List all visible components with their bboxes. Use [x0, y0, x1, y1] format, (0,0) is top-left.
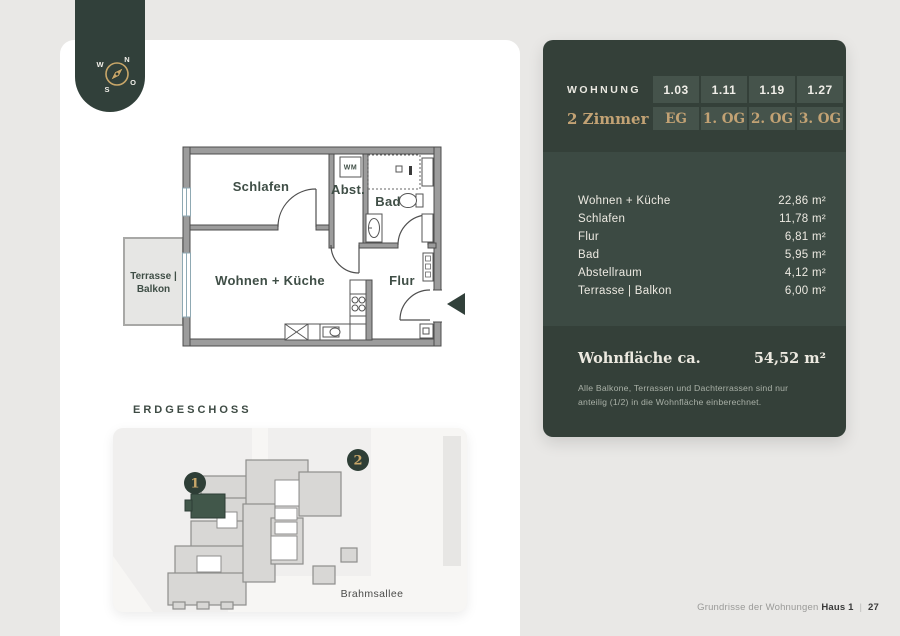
- brochure-page: N O S W Terrasse | Balkon: [0, 0, 900, 636]
- wall-bad-bottom: [359, 243, 398, 248]
- door-schlafen: [278, 189, 316, 227]
- unit-cell-1-03[interactable]: 1.03: [653, 76, 699, 103]
- footer-page-number: 27: [868, 602, 879, 613]
- room-label-terrasse-1: Terrasse |: [130, 271, 177, 282]
- floor-level-label: ERDGESCHOSS: [133, 404, 252, 416]
- room-row: Bad 5,95 m²: [578, 246, 826, 264]
- wall-stub2: [428, 243, 436, 248]
- kitchen-counter: [285, 324, 366, 340]
- unit-cell-1-19[interactable]: 1.19: [749, 76, 795, 103]
- site-plan-map: 1 2 Brahmsallee: [113, 428, 467, 612]
- wall-kitchen: [366, 280, 372, 340]
- footer-house: Haus 1: [821, 602, 853, 613]
- floor-plan: Terrasse | Balkon: [120, 138, 470, 358]
- shower-area: [368, 155, 420, 189]
- window-terrace-door: [183, 253, 191, 317]
- floor-cell-3og[interactable]: 3. OG: [797, 107, 843, 130]
- wall-abst-left: [329, 154, 334, 248]
- window-schlafen: [183, 188, 191, 216]
- unit-cell-1-27[interactable]: 1.27: [797, 76, 843, 103]
- room-label-bad: Bad: [375, 194, 400, 209]
- stove: [350, 280, 366, 324]
- door-abstellraum: [331, 245, 359, 273]
- wall-niche-1: [422, 158, 433, 186]
- compass-icon: N O S W: [75, 0, 145, 112]
- footer-separator: |: [857, 602, 866, 613]
- site-plan-card: 1 2 Brahmsallee: [113, 428, 467, 612]
- room-row: Flur 6,81 m²: [578, 228, 826, 246]
- room-row-area: 5,95 m²: [785, 246, 826, 264]
- floor-cell-1og[interactable]: 1. OG: [701, 107, 747, 130]
- panel-header: WOHNUNG 1.03 1.11 1.19 1.27 2 Zimmer EG …: [543, 40, 846, 152]
- building-1: [168, 476, 253, 609]
- room-row-area: 6,00 m²: [785, 282, 826, 300]
- room-label-schlafen: Schlafen: [233, 179, 290, 194]
- road-right: [443, 436, 461, 566]
- room-row-label: Terrasse | Balkon: [578, 282, 672, 300]
- room-row: Schlafen 11,78 m²: [578, 210, 826, 228]
- wm-label: WM: [344, 165, 357, 172]
- wall-niche-2: [422, 214, 433, 242]
- entry-opening: [433, 290, 442, 322]
- house-2-badge: 2: [347, 449, 369, 471]
- street-label: Brahmsallee: [341, 588, 404, 600]
- building-2: [243, 460, 357, 584]
- house-1-badge: 1: [184, 472, 206, 494]
- room-label-flur: Flur: [389, 273, 415, 288]
- total-area-section: Wohnfläche ca. 54,52 m² Alle Balkone, Te…: [543, 326, 846, 437]
- floor-cell-eg[interactable]: EG: [653, 107, 699, 130]
- zimmer-label: 2 Zimmer: [567, 110, 651, 128]
- total-area-label: Wohnfläche ca.: [578, 350, 701, 367]
- room-row-area: 6,81 m²: [785, 228, 826, 246]
- room-row-area: 4,12 m²: [785, 264, 826, 282]
- compass-o: O: [130, 78, 136, 87]
- door-entry: [400, 290, 430, 320]
- room-row: Terrasse | Balkon 6,00 m²: [578, 282, 826, 300]
- room-row: Abstellraum 4,12 m²: [578, 264, 826, 282]
- area-note: Alle Balkone, Terrassen und Dachterrasse…: [578, 381, 826, 409]
- room-row-area: 22,86 m²: [778, 192, 826, 210]
- room-label-wohnen: Wohnen + Küche: [215, 273, 325, 288]
- room-row-label: Wohnen + Küche: [578, 192, 671, 210]
- compass-s: S: [104, 85, 109, 94]
- toilet: [400, 194, 424, 208]
- road-corner: [113, 556, 153, 612]
- compass-ribbon: N O S W: [75, 0, 145, 112]
- room-row: Wohnen + Küche 22,86 m²: [578, 192, 826, 210]
- page-footer: Grundrisse der Wohnungen Haus 1 | 27: [697, 602, 879, 613]
- svg-text:1: 1: [190, 477, 199, 492]
- sink-bad: [366, 214, 382, 242]
- compass-w: W: [96, 60, 104, 69]
- room-row-label: Bad: [578, 246, 599, 264]
- floor-cell-2og[interactable]: 2. OG: [749, 107, 795, 130]
- svg-text:2: 2: [353, 454, 362, 469]
- wall-schlafen: [190, 225, 278, 230]
- footer-text: Grundrisse der Wohnungen: [697, 602, 818, 613]
- room-label-terrasse-2: Balkon: [137, 284, 170, 295]
- total-area-value: 54,52 m²: [754, 350, 826, 367]
- room-label-abst: Abst.: [331, 182, 365, 197]
- radiator: [423, 253, 433, 281]
- room-row-label: Flur: [578, 228, 599, 246]
- highlighted-unit: [191, 494, 225, 518]
- wall-top: [183, 147, 441, 154]
- apartment-info-panel: WOHNUNG 1.03 1.11 1.19 1.27 2 Zimmer EG …: [543, 40, 846, 437]
- entry-arrow-icon: [447, 293, 465, 315]
- compass-n: N: [124, 55, 129, 64]
- room-row-label: Schlafen: [578, 210, 625, 228]
- room-row-label: Abstellraum: [578, 264, 642, 282]
- unit-cell-1-11[interactable]: 1.11: [701, 76, 747, 103]
- shaft: [420, 324, 433, 338]
- room-row-area: 11,78 m²: [779, 210, 826, 228]
- room-area-list: Wohnen + Küche 22,86 m² Schlafen 11,78 m…: [543, 152, 846, 326]
- wohnung-label: WOHNUNG: [567, 84, 651, 96]
